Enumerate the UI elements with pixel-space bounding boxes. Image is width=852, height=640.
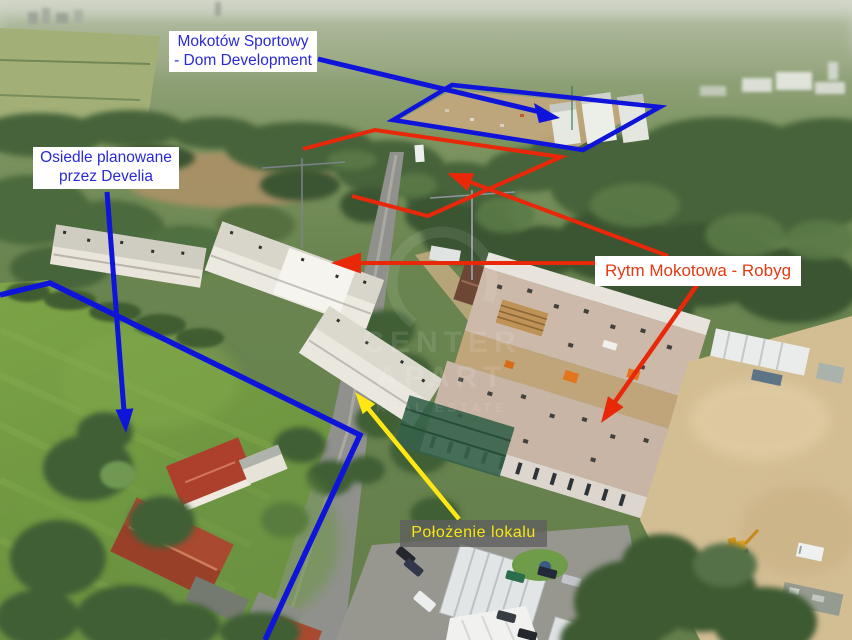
label-mokotow-sportowy: Mokotów Sportowy - Dom Development <box>169 31 317 72</box>
annotated-aerial-photo: CENTER APART REAL ESTATE Mokotów Sportow… <box>0 0 852 640</box>
label-mokotow-line2: - Dom Development <box>169 51 317 70</box>
label-osiedle-develia: Osiedle planowane przez Develia <box>33 147 179 189</box>
watermark-line-3: REAL ESTATE <box>376 400 508 415</box>
label-develia-line2: przez Develia <box>33 167 179 186</box>
watermark-line-2: APART <box>376 361 507 394</box>
label-polozenie-lokalu: Położenie lokalu <box>400 520 547 547</box>
label-mokotow-line1: Mokotów Sportowy <box>169 32 317 51</box>
label-rytm-mokotowa: Rytm Mokotowa - Robyg <box>595 256 801 286</box>
label-develia-line1: Osiedle planowane <box>33 148 179 167</box>
watermark-line-1: CENTER <box>362 326 521 359</box>
